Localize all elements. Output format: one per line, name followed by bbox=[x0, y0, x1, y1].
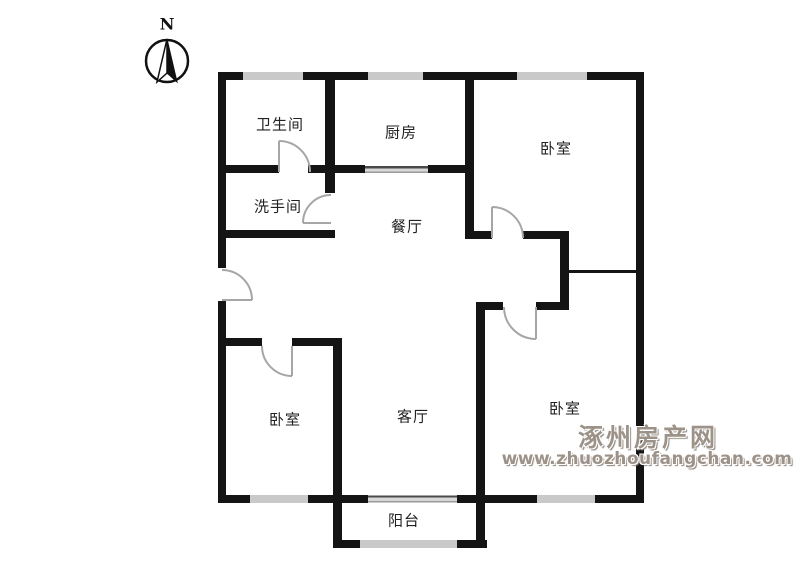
wall-segment bbox=[325, 165, 365, 173]
room-label-living: 客厅 bbox=[397, 406, 429, 427]
window-marker bbox=[360, 540, 457, 548]
wall-segment bbox=[476, 302, 485, 548]
room-label-washroom: 洗手间 bbox=[254, 196, 302, 217]
sliding-door-kitchen bbox=[365, 166, 428, 173]
sliding-door-balcony bbox=[368, 496, 457, 503]
window-marker bbox=[537, 495, 595, 503]
room-label-bedroom-bottom-right: 卧室 bbox=[549, 398, 581, 419]
sliding-door-panel bbox=[368, 498, 457, 502]
window-marker bbox=[243, 72, 303, 80]
sliding-door-panel bbox=[365, 169, 428, 172]
room-label-balcony: 阳台 bbox=[388, 510, 420, 531]
wall-segment bbox=[569, 270, 638, 273]
compass-needle-left bbox=[157, 39, 167, 82]
wall-segment bbox=[292, 338, 342, 346]
floor-plan: N 卫生间 洗手间 厨房 餐厅 卧室 卧室 卧室 客厅 阳台 涿州房产网 www… bbox=[0, 0, 800, 563]
floor-plan-drawing bbox=[0, 0, 800, 563]
wall-segment bbox=[465, 231, 492, 239]
compass-needle-right bbox=[167, 39, 177, 82]
door-arc bbox=[222, 270, 252, 300]
wall-segment bbox=[218, 301, 226, 503]
room-label-bathroom: 卫生间 bbox=[256, 114, 304, 135]
door-arc bbox=[279, 141, 310, 172]
door-arc bbox=[303, 195, 331, 223]
room-label-bedroom-bottom-left: 卧室 bbox=[269, 409, 301, 430]
door-arc bbox=[492, 207, 523, 238]
wall-segment bbox=[218, 230, 335, 238]
wall-segment bbox=[218, 338, 262, 346]
compass-north-label: N bbox=[160, 15, 175, 34]
room-label-kitchen: 厨房 bbox=[385, 122, 417, 143]
door-arc bbox=[262, 346, 292, 376]
watermark-site-url: www.zhuozhoufangchan.com bbox=[502, 449, 793, 469]
window-marker bbox=[250, 495, 308, 503]
window-marker bbox=[368, 72, 423, 80]
wall-segment bbox=[218, 165, 279, 173]
wall-segment bbox=[476, 302, 503, 310]
room-label-bedroom-top-right: 卧室 bbox=[540, 138, 572, 159]
compass-icon bbox=[146, 39, 188, 82]
window-marker bbox=[517, 72, 587, 80]
wall-segment bbox=[325, 72, 335, 193]
door-arcs bbox=[222, 141, 536, 376]
sliding-door-rail bbox=[368, 501, 457, 503]
sliding-door-rail bbox=[365, 166, 428, 169]
wall-segment bbox=[560, 231, 569, 310]
sliding-door-rail bbox=[368, 496, 457, 498]
sliding-door-rail bbox=[365, 172, 428, 174]
wall-segment bbox=[536, 302, 569, 310]
wall-segment bbox=[333, 338, 342, 548]
door-arc bbox=[504, 307, 536, 339]
wall-segment bbox=[465, 72, 474, 239]
room-label-dining: 餐厅 bbox=[391, 216, 423, 237]
